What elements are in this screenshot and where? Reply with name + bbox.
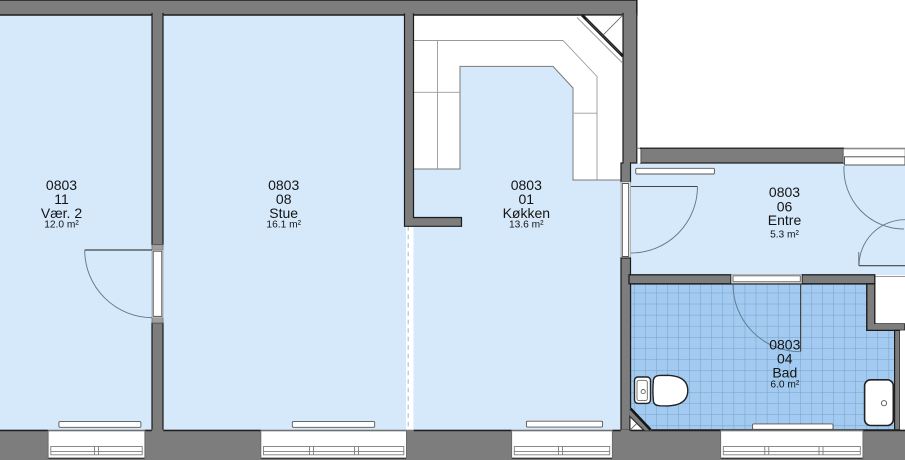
svg-text:Bad: Bad [772,364,797,380]
svg-text:13.6 m²: 13.6 m² [509,220,544,231]
svg-text:Vær. 2: Vær. 2 [41,205,82,221]
svg-text:5.3 m²: 5.3 m² [770,230,799,241]
svg-text:Entre: Entre [768,212,802,228]
svg-text:16.1 m²: 16.1 m² [266,220,301,231]
svg-text:6.0 m²: 6.0 m² [770,379,799,390]
svg-text:12.0 m²: 12.0 m² [44,220,79,231]
svg-text:Køkken: Køkken [503,205,550,221]
svg-text:Stue: Stue [269,205,298,221]
